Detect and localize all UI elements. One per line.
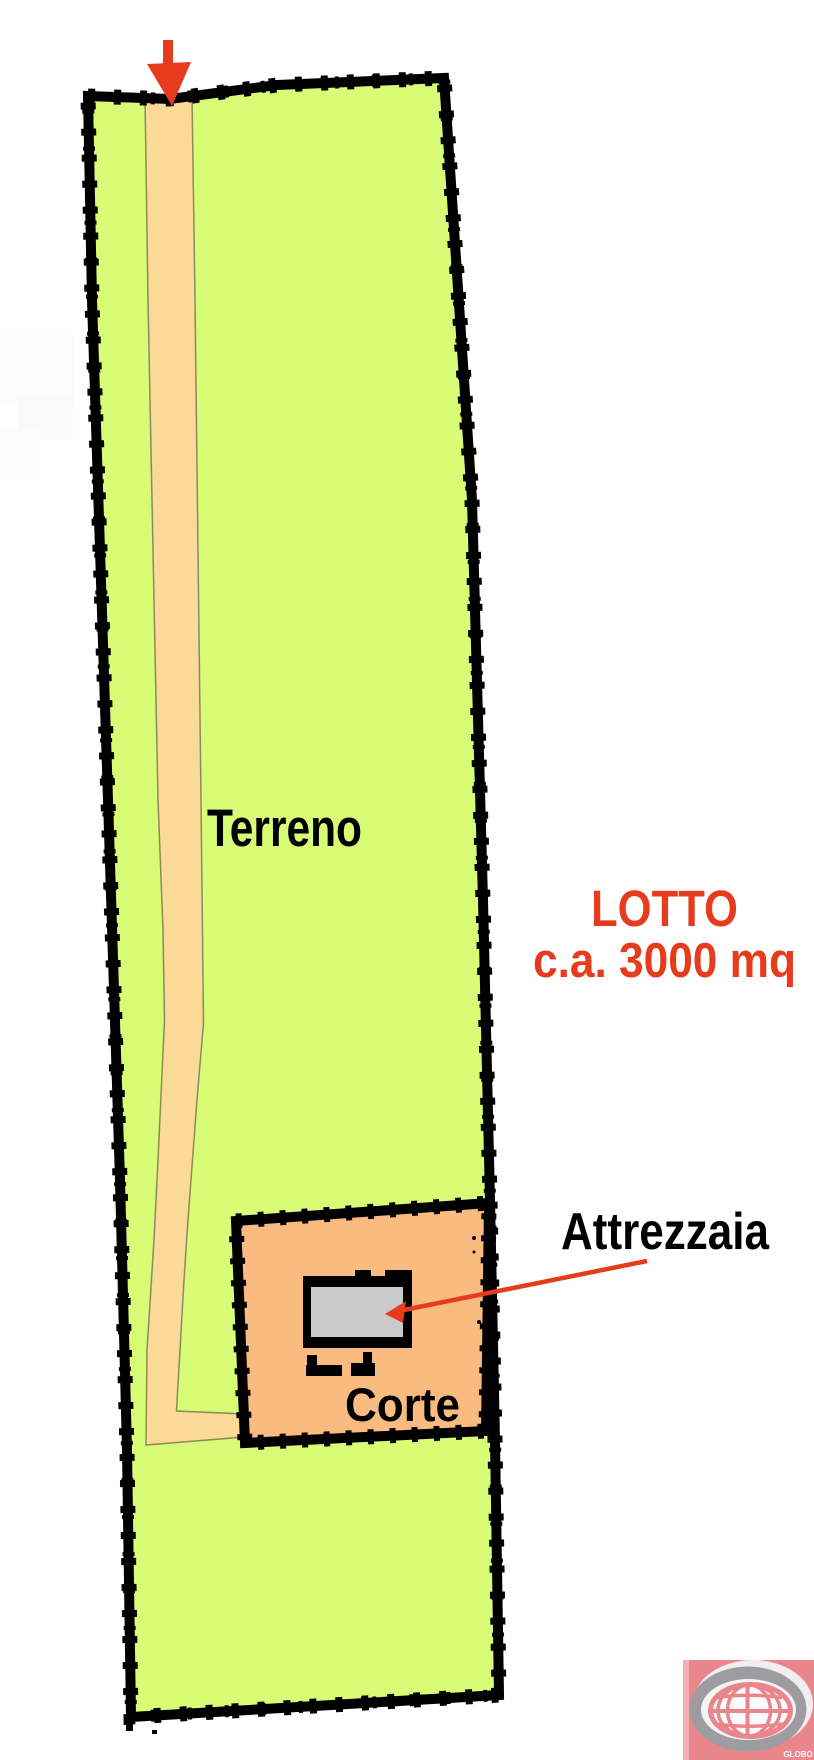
svg-text:Attrezzaia: Attrezzaia [561, 1203, 770, 1261]
svg-text:LOTTO: LOTTO [591, 880, 738, 937]
svg-text:GLOBO: GLOBO [783, 1750, 812, 1759]
svg-text:c.a. 3000 mq: c.a. 3000 mq [533, 934, 796, 988]
svg-text:Terreno: Terreno [207, 799, 362, 858]
svg-text:Corte: Corte [345, 1378, 460, 1431]
